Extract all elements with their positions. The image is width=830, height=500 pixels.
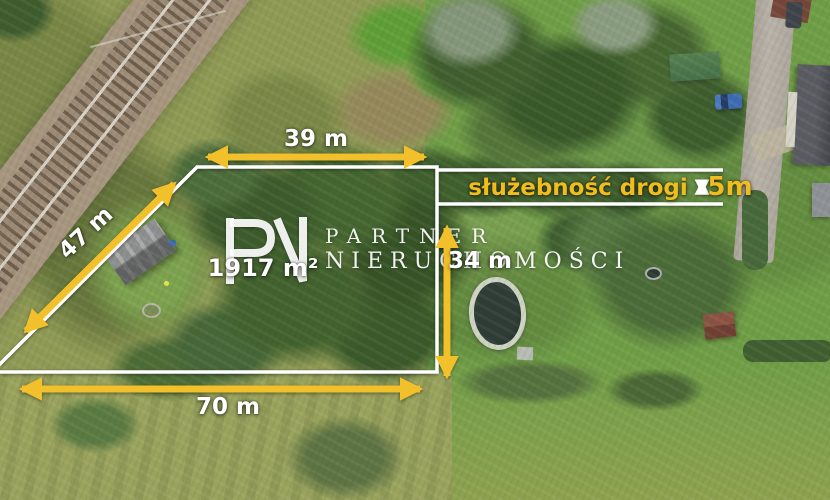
annotation-overlay [0, 0, 830, 500]
label-easement-width: 5m [707, 172, 752, 202]
label-inner-depth: 34 m [448, 248, 512, 274]
label-plot-area: 1917 m² [208, 254, 319, 282]
label-top-width: 39 m [284, 126, 348, 152]
aerial-listing-photo: PARTNER NIERUCHOMOŚCI 39 m 47 m 70 m 34 … [0, 0, 830, 500]
label-bottom-width: 70 m [196, 394, 260, 420]
label-easement: służebność drogi [468, 175, 688, 201]
